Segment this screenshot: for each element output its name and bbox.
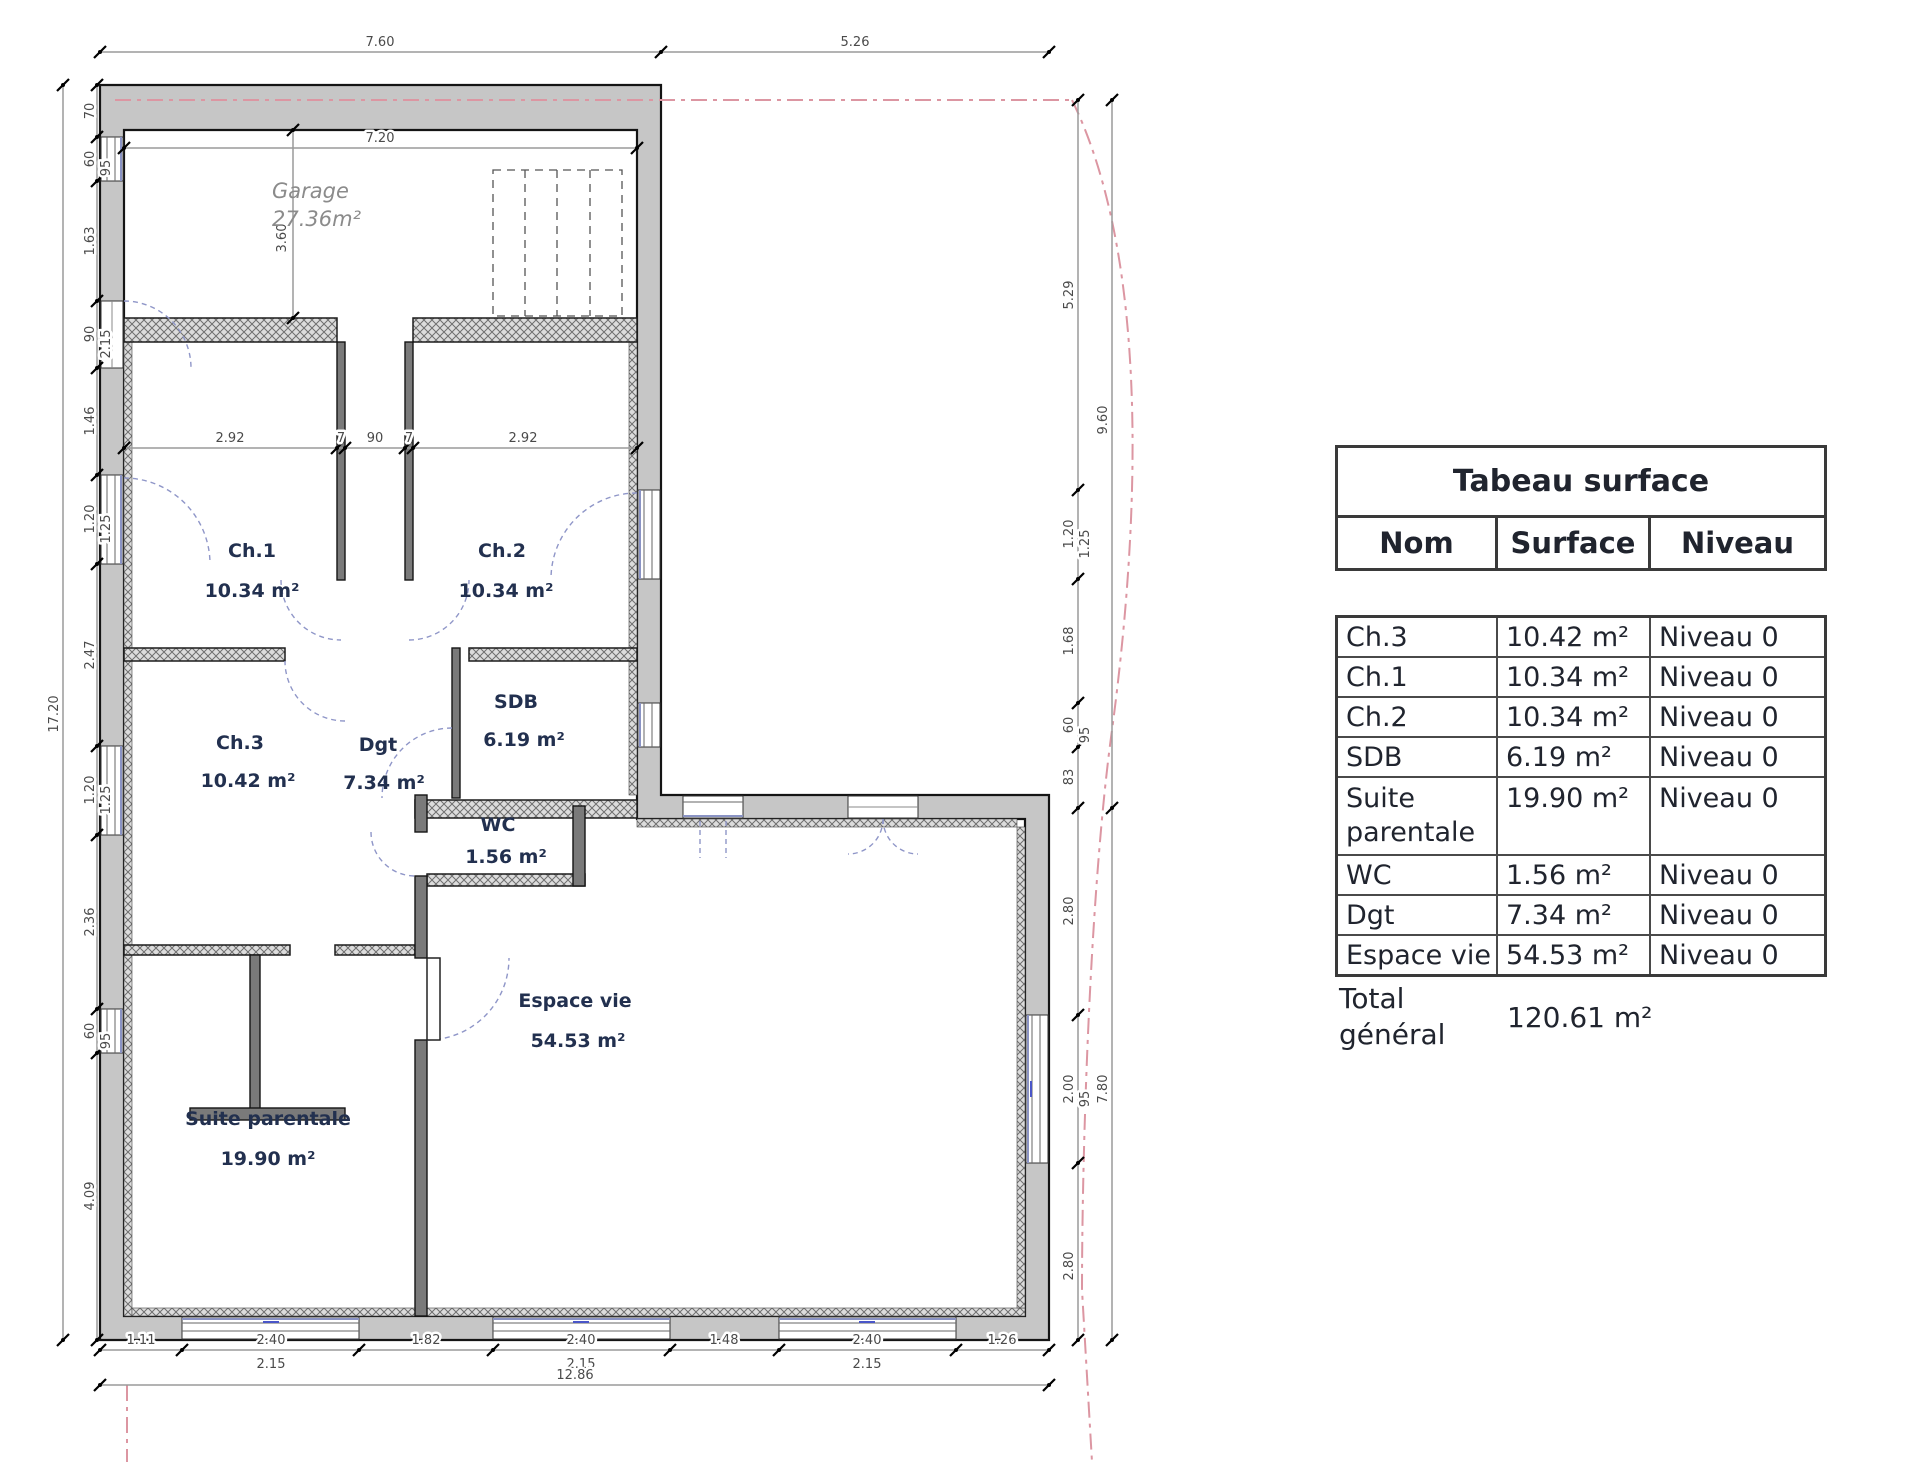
dim-bottom-total: 12.86 [556,1368,593,1383]
surface-table-total: Total général 120.61 m² [1335,981,1827,1054]
table-cell-surface: 54.53 m² [1498,936,1651,974]
dim-bedroom: 2.92 [216,431,245,446]
wall-ch2-sdb [469,648,637,661]
table-cell-niveau: Niveau 0 [1651,738,1824,776]
table-row: Dgt7.34 m²Niveau 0 [1338,896,1824,936]
column-header-niveau: Niveau [1651,518,1824,568]
dim-left: 1.20 [83,776,98,805]
wall-garage-ch2 [413,318,637,342]
dim-bottom-sub: 2.15 [257,1357,286,1372]
dim-right: 95 [1078,727,1093,744]
dim-bottom: 2.40 [257,1333,286,1348]
dim-right: 1.68 [1062,627,1077,656]
wall-divider-b [415,876,427,958]
table-cell-niveau: Niveau 0 [1651,936,1824,974]
dim-bottom: 1.11 [127,1333,156,1348]
table-cell-niveau: Niveau 0 [1651,778,1824,854]
wall-dgt-sdb [452,648,460,798]
surface-table-header: Tabeau surface Nom Surface Niveau [1335,445,1827,571]
room-label-ch1-area: 10.34 m² [205,580,300,602]
table-row: Ch.210.34 m²Niveau 0 [1338,698,1824,738]
dim-left: 2.15 [99,330,114,359]
table-cell-niveau: Niveau 0 [1651,896,1824,934]
dim-top-1: 7.60 [366,35,395,50]
dim-left: 70 [83,103,98,120]
table-row: Ch.310.42 m²Niveau 0 [1338,618,1824,658]
dim-right-total: 9.60 [1096,406,1111,435]
dim-garage-width: 7.20 [366,131,395,146]
dim-left: 60 [83,1023,98,1040]
room-label-garage-area: 27.36m² [272,207,362,231]
table-cell-surface: 7.34 m² [1498,896,1651,934]
dim-left: 4.09 [83,1182,98,1211]
dim-left: 95 [99,160,114,177]
dim-right: 2.80 [1062,897,1077,926]
total-value: 120.61 m² [1495,981,1652,1054]
dim-left: 60 [83,151,98,168]
table-cell-nom: Ch.3 [1338,618,1498,656]
wall-divider-a [415,795,427,832]
dim-left: 95 [99,1033,114,1050]
table-cell-surface: 1.56 m² [1498,856,1651,894]
dim-left: 1.46 [83,407,98,436]
room-label-suite-area: 19.90 m² [221,1148,316,1170]
dim-bottom-sub: 2.15 [853,1357,882,1372]
total-label: Total général [1335,981,1495,1054]
dim-right: 1.20 [1062,520,1077,549]
dim-bottom: 1.82 [412,1333,441,1348]
window-swing-ch1 [124,478,210,564]
floor-plan-page: 7.605.267.203.602.9279072.9217.207060951… [0,0,1920,1465]
dim-left: 2.47 [83,641,98,670]
dim-bottom: 2.40 [567,1333,596,1348]
dim-left-total: 17.20 [47,695,62,732]
table-cell-nom: Dgt [1338,896,1498,934]
dim-left: 1.25 [99,515,114,544]
dim-left: 1.20 [83,505,98,534]
room-label-ch3-area: 10.42 m² [201,770,296,792]
door-espace-north [848,796,918,818]
table-cell-nom: WC [1338,856,1498,894]
dim-bedroom: 90 [367,431,384,446]
room-label-dgt-area: 7.34 m² [343,772,425,794]
dim-right: 60 [1062,717,1077,734]
surface-table-body: Ch.310.42 m²Niveau 0Ch.110.34 m²Niveau 0… [1335,615,1827,977]
dim-right: 83 [1062,769,1077,786]
dimension-chains [63,52,1112,1385]
wall-wc-bottom [427,874,585,886]
table-cell-niveau: Niveau 0 [1651,658,1824,696]
window-espace-east [1026,1015,1048,1163]
surface-table: Tabeau surface Nom Surface Niveau Ch.310… [1335,445,1827,1054]
window-sdb-east [638,703,660,747]
window-ch2-east [638,490,660,579]
wall-corridor-left [337,342,345,580]
dim-left: 2.36 [83,908,98,937]
table-row: WC1.56 m²Niveau 0 [1338,856,1824,896]
table-row: Espace vie54.53 m²Niveau 0 [1338,936,1824,974]
table-cell-surface: 10.42 m² [1498,618,1651,656]
table-cell-surface: 6.19 m² [1498,738,1651,776]
wall-divider-c [415,1040,427,1316]
table-row: Suite parentale19.90 m²Niveau 0 [1338,778,1824,856]
dim-left: 1.25 [99,786,114,815]
table-cell-niveau: Niveau 0 [1651,698,1824,736]
plan-labels: 7.605.267.203.602.9279072.9217.207060951… [47,35,1111,1383]
table-cell-nom: Ch.2 [1338,698,1498,736]
room-label-garage-name: Garage [272,179,349,203]
wall-garage-ch1 [124,318,337,342]
dim-bottom: 2.40 [853,1333,882,1348]
garage-door-grid [493,170,622,316]
dim-right-total: 7.80 [1096,1075,1111,1104]
door-arc-ch3 [285,661,345,721]
dim-left: 1.63 [83,227,98,256]
room-label-ch2-area: 10.34 m² [459,580,554,602]
table-cell-niveau: Niveau 0 [1651,618,1824,656]
dim-bedroom: 7 [337,431,345,446]
room-label-ch2-name: Ch.2 [478,540,526,562]
room-label-espace-name: Espace vie [518,990,631,1012]
table-cell-nom: Espace vie [1338,936,1498,974]
column-header-nom: Nom [1338,518,1498,568]
dim-right: 95 [1078,1091,1093,1108]
dim-bottom: 1.26 [988,1333,1017,1348]
dim-right: 1.25 [1078,530,1093,559]
wall-ch3-suite-b [335,945,415,955]
room-label-sdb-area: 6.19 m² [483,729,565,751]
table-cell-nom: Ch.1 [1338,658,1498,696]
dim-top-2: 5.26 [841,35,870,50]
room-label-wc-name: WC [481,814,516,836]
table-row: SDB6.19 m²Niveau 0 [1338,738,1824,778]
dim-right: 5.29 [1062,281,1077,310]
wall-ch3-suite-a [124,945,290,955]
dimension-ticks [57,46,1118,1391]
window-swing-ch2 [551,493,637,579]
dim-bottom: 1.48 [710,1333,739,1348]
wall-wc-east [573,806,585,886]
dim-bedroom: 7 [405,431,413,446]
table-title: Tabeau surface [1338,448,1824,518]
door-arcs [124,301,918,1040]
room-label-sdb-name: SDB [494,691,538,713]
wall-suite-closet-v [250,955,260,1115]
column-header-surface: Surface [1498,518,1651,568]
dim-left: 90 [83,326,98,343]
table-cell-surface: 19.90 m² [1498,778,1651,854]
table-cell-nom: SDB [1338,738,1498,776]
room-label-ch1-name: Ch.1 [228,540,276,562]
dim-bedroom: 2.92 [509,431,538,446]
table-cell-surface: 10.34 m² [1498,698,1651,736]
table-row: Ch.110.34 m²Niveau 0 [1338,658,1824,698]
wall-sdb-south-wc-top [415,800,637,818]
room-label-dgt-name: Dgt [359,734,397,756]
door-leaf-suite [427,958,440,1040]
room-label-ch3-name: Ch.3 [216,732,264,754]
dim-right: 2.00 [1062,1075,1077,1104]
vent-marks [263,1081,1031,1322]
wall-corridor-right [405,342,413,580]
table-cell-surface: 10.34 m² [1498,658,1651,696]
table-cell-niveau: Niveau 0 [1651,856,1824,894]
room-label-suite-name: Suite parentale [185,1108,351,1130]
table-cell-nom: Suite parentale [1338,778,1498,854]
room-label-espace-area: 54.53 m² [531,1030,626,1052]
dim-right: 2.80 [1062,1252,1077,1281]
room-label-wc-area: 1.56 m² [465,846,547,868]
wall-ch1-ch3 [124,648,285,661]
door-arc-wc [371,832,415,876]
window-espace-north [683,796,743,818]
